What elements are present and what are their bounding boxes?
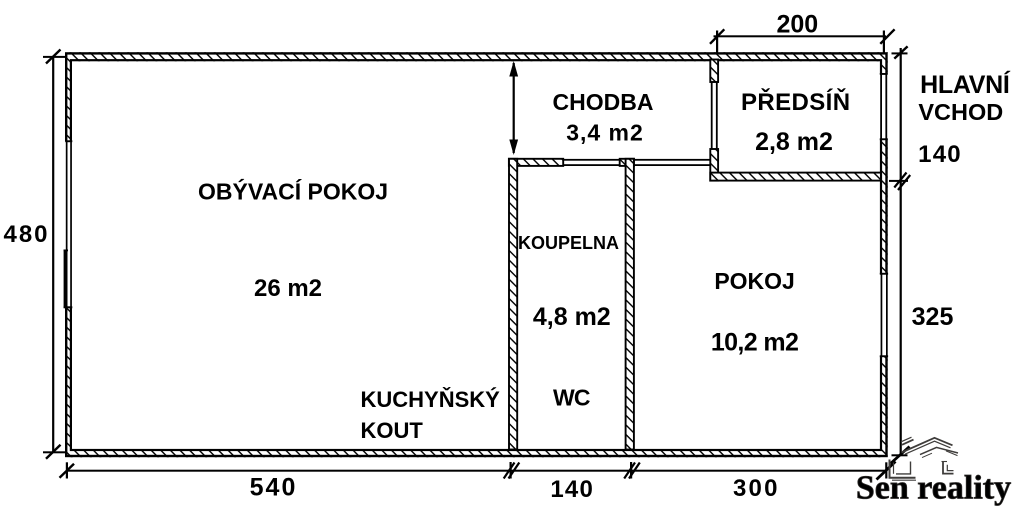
svg-text:OBÝVACÍ POKOJ: OBÝVACÍ POKOJ: [198, 178, 388, 205]
svg-text:VCHOD: VCHOD: [918, 99, 1003, 125]
svg-text:KOUT: KOUT: [361, 418, 424, 443]
svg-text:325: 325: [912, 303, 954, 331]
svg-text:PŘEDSÍŇ: PŘEDSÍŇ: [741, 88, 851, 116]
svg-text:10,2 m2: 10,2 m2: [711, 329, 799, 357]
svg-text:140: 140: [550, 476, 594, 503]
svg-text:Sen reality: Sen reality: [856, 470, 1011, 507]
svg-text:200: 200: [776, 11, 818, 39]
svg-text:26 m2: 26 m2: [254, 275, 322, 302]
svg-text:KOUPELNA: KOUPELNA: [518, 233, 619, 253]
svg-text:HLAVNÍ: HLAVNÍ: [920, 70, 1011, 99]
svg-text:300: 300: [733, 475, 780, 502]
svg-text:CHODBA: CHODBA: [553, 89, 654, 115]
svg-text:4,8 m2: 4,8 m2: [533, 303, 611, 331]
svg-text:540: 540: [250, 474, 298, 502]
svg-text:480: 480: [3, 221, 49, 248]
svg-text:KUCHYŇSKÝ: KUCHYŇSKÝ: [361, 387, 501, 412]
svg-text:2,8 m2: 2,8 m2: [755, 128, 833, 156]
svg-text:WC: WC: [553, 385, 590, 411]
svg-text:POKOJ: POKOJ: [714, 268, 795, 294]
svg-text:140: 140: [918, 141, 962, 168]
svg-text:3,4 m2: 3,4 m2: [566, 120, 644, 146]
